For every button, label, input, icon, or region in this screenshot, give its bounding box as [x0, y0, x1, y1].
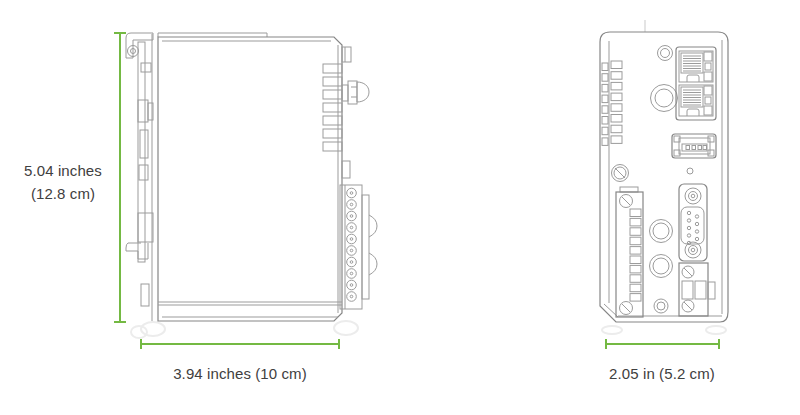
power-terminal	[679, 263, 715, 316]
dimension-diagram: 5.04 inches (12.8 cm) 3.94 inches (10 cm…	[0, 0, 800, 415]
height-dimension-cm: (12.8 cm)	[8, 182, 118, 205]
depth-dimension-line	[606, 339, 719, 349]
antenna-connector-mid1	[650, 220, 673, 243]
din-rail-bracket	[126, 33, 153, 306]
shadow-marks	[131, 321, 358, 338]
antenna-connector-top	[651, 85, 678, 112]
depth-dimension-label: 2.05 in (5.2 cm)	[600, 362, 724, 385]
antenna-connector-mid2	[650, 255, 673, 278]
serial-port-db9	[679, 184, 707, 261]
reset-button	[658, 46, 673, 61]
bottom-connector	[654, 299, 668, 313]
mid-tab	[342, 161, 350, 178]
mounting-screw	[612, 165, 629, 182]
top-tab	[342, 47, 351, 62]
antenna-connector-side	[342, 81, 369, 104]
width-dimension-line	[141, 339, 339, 349]
width-dimension-label: 3.94 inches (10 cm)	[138, 362, 342, 385]
io-terminal-block	[616, 187, 643, 317]
front-view-drawing	[600, 20, 728, 334]
terminal-block-side	[340, 185, 377, 309]
shadow-marks-front	[602, 326, 726, 334]
vent-slots-front	[602, 61, 622, 145]
usb-port	[672, 134, 716, 158]
side-view-drawing	[126, 33, 377, 338]
led-dot	[687, 168, 693, 174]
vent-slots-side	[323, 64, 342, 151]
ethernet-ports	[676, 47, 716, 120]
height-dimension-inches: 5.04 inches	[8, 159, 118, 182]
height-dimension-label: 5.04 inches (12.8 cm)	[8, 159, 118, 205]
device-line-drawing	[0, 0, 800, 415]
